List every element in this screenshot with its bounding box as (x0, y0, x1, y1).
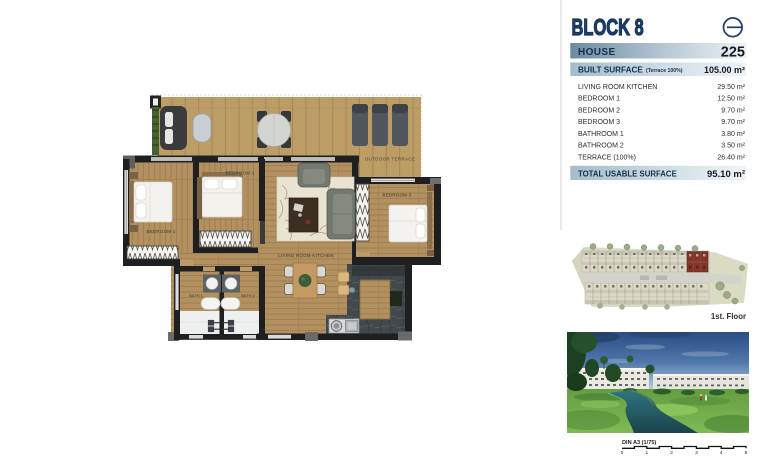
svg-text:9.70 m²: 9.70 m² (721, 119, 745, 126)
svg-text:HOUSE: HOUSE (578, 47, 616, 58)
svg-text:9.70 m²: 9.70 m² (721, 107, 745, 114)
svg-text:BATHROOM 1: BATHROOM 1 (578, 131, 624, 138)
svg-text:BEDROOM 2: BEDROOM 2 (225, 171, 254, 176)
svg-text:1st. Floor: 1st. Floor (711, 312, 746, 321)
svg-text:BEDROOM 3: BEDROOM 3 (382, 193, 411, 198)
svg-text:BEDROOM 3: BEDROOM 3 (578, 119, 620, 126)
svg-text:3.80 m²: 3.80 m² (721, 131, 745, 138)
svg-text:TERRACE (100%): TERRACE (100%) (578, 154, 636, 161)
svg-text:DIN A3 (1/75): DIN A3 (1/75) (622, 440, 656, 446)
svg-text:BATH 1: BATH 1 (189, 293, 203, 298)
svg-text:3.50 m²: 3.50 m² (721, 143, 745, 150)
svg-text:26.40 m²: 26.40 m² (717, 154, 745, 161)
svg-text:BEDROOM 1: BEDROOM 1 (578, 96, 620, 103)
svg-text:BATH 2: BATH 2 (241, 293, 255, 298)
svg-text:1: 1 (645, 450, 648, 456)
svg-text:LIVING ROOM KITCHEN: LIVING ROOM KITCHEN (278, 253, 333, 258)
svg-text:OUTDOOR TERRACE: OUTDOOR TERRACE (365, 157, 416, 162)
svg-text:BATHROOM 2: BATHROOM 2 (578, 143, 624, 150)
svg-text:12.50 m²: 12.50 m² (717, 96, 745, 103)
svg-text:LIVING ROOM KITCHEN: LIVING ROOM KITCHEN (578, 84, 657, 91)
svg-text:105.00 m²: 105.00 m² (704, 65, 745, 75)
svg-text:225: 225 (721, 45, 745, 61)
svg-text:2: 2 (670, 450, 673, 456)
svg-text:BEDROOM 2: BEDROOM 2 (578, 107, 620, 114)
svg-text:(Terrace 100%): (Terrace 100%) (646, 68, 683, 74)
svg-text:3: 3 (695, 450, 698, 456)
svg-text:4: 4 (720, 450, 723, 456)
svg-text:BEDROOM 1: BEDROOM 1 (146, 229, 175, 234)
svg-text:TOTAL USABLE SURFACE: TOTAL USABLE SURFACE (578, 169, 677, 178)
svg-text:BUILT SURFACE: BUILT SURFACE (578, 66, 643, 75)
svg-text:95.10 m²: 95.10 m² (707, 169, 745, 180)
svg-text:29.50 m²: 29.50 m² (717, 84, 745, 91)
svg-text:BLOCK 8: BLOCK 8 (572, 15, 644, 40)
svg-text:5: 5 (745, 450, 748, 456)
svg-text:0: 0 (621, 450, 624, 456)
